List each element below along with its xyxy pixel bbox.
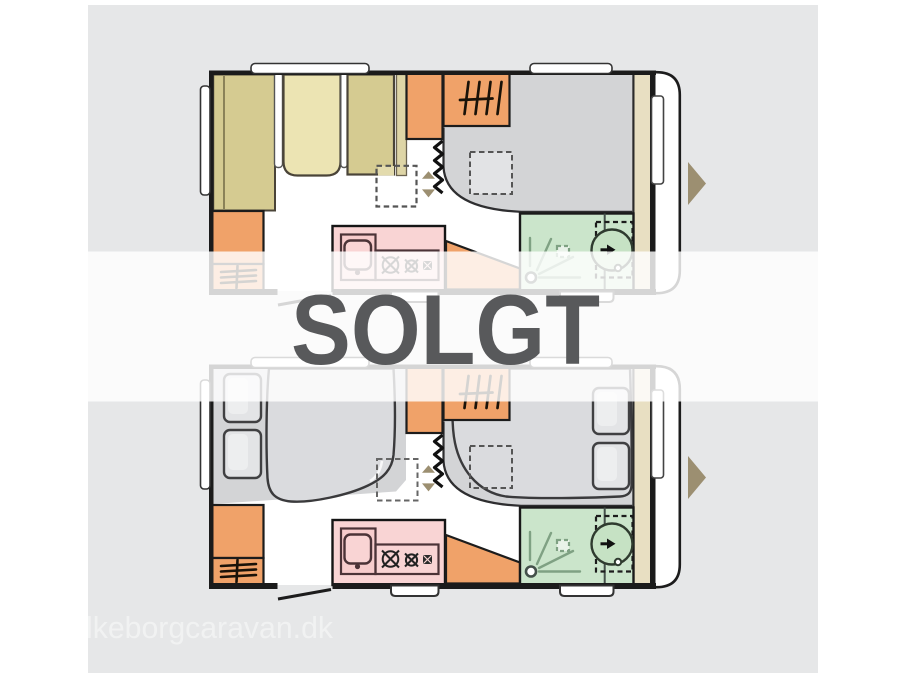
svg-text:lkeborgcaravan.dk: lkeborgcaravan.dk xyxy=(86,611,334,645)
svg-text:SOLGT: SOLGT xyxy=(291,274,600,385)
